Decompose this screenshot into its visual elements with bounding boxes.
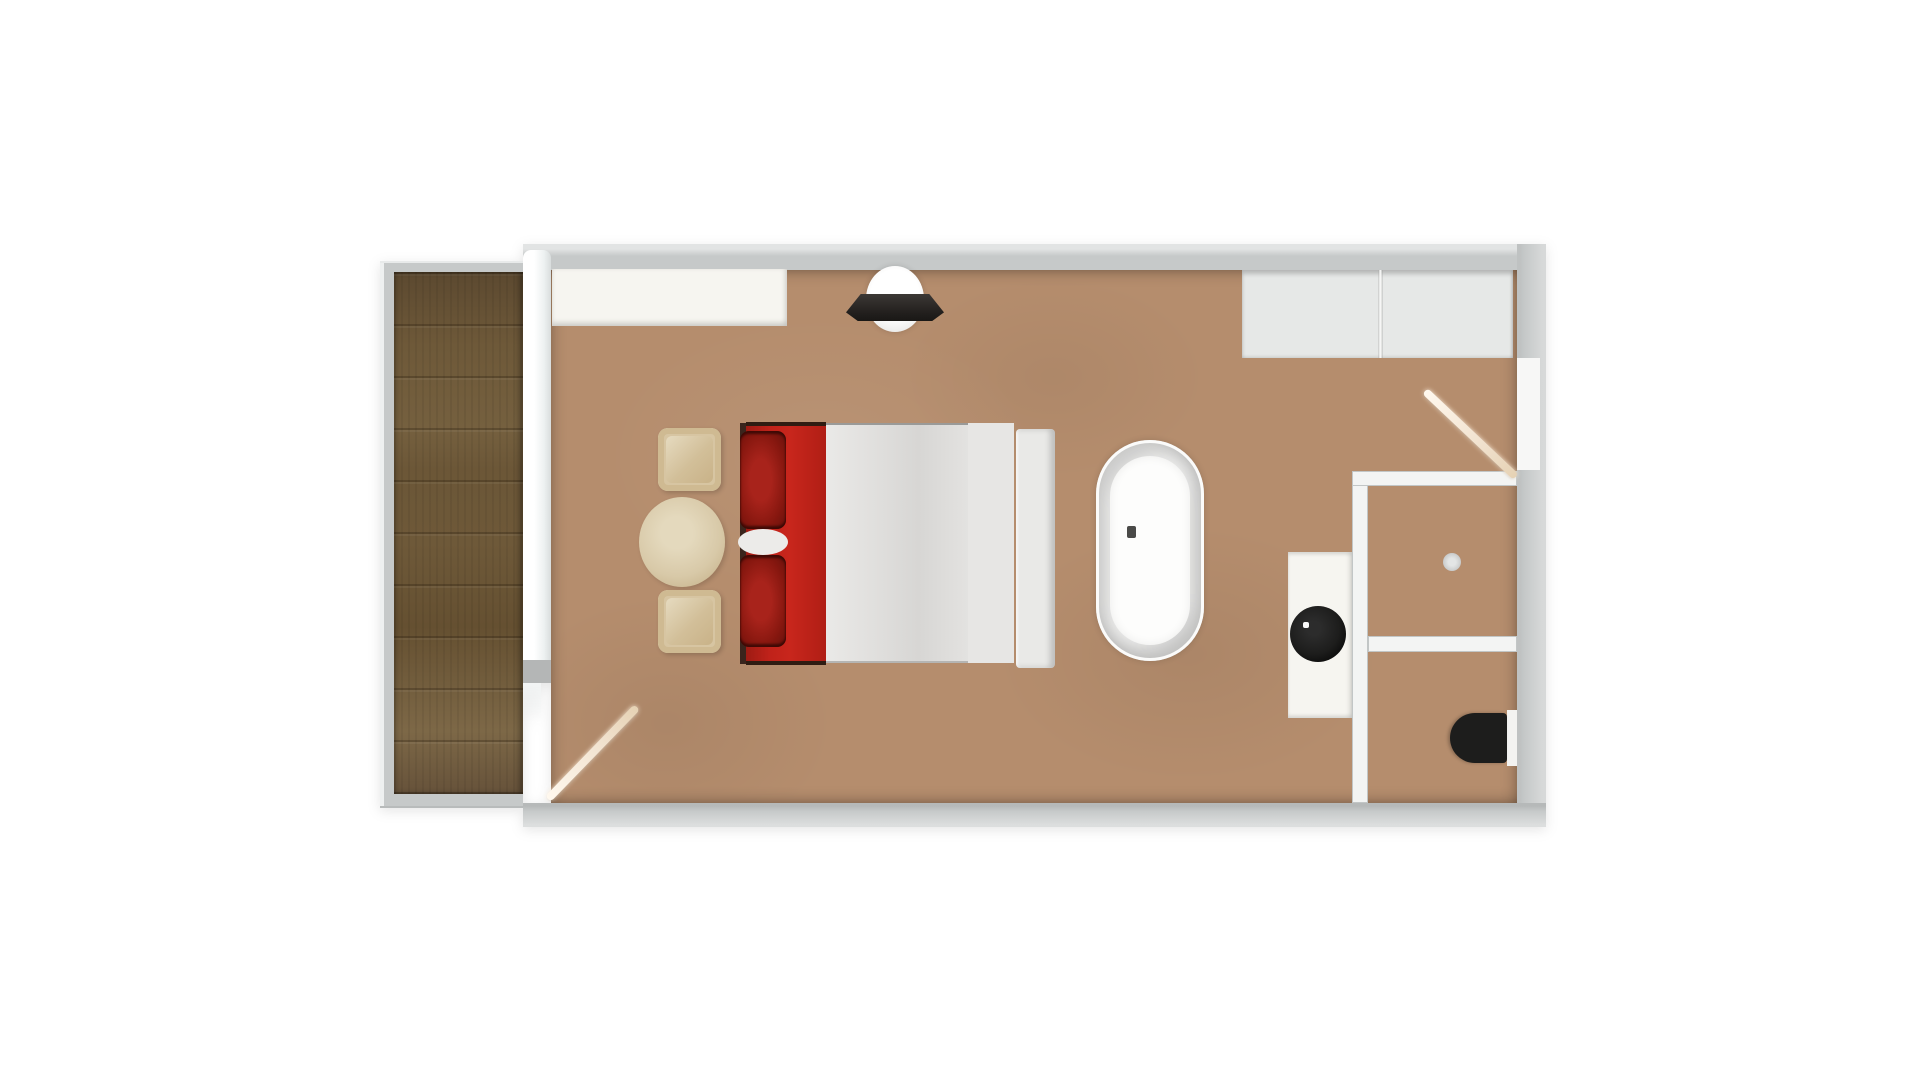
armchair-bottom bbox=[658, 590, 721, 653]
double-bed bbox=[740, 420, 1055, 668]
bed-pillow-area bbox=[968, 423, 1014, 663]
armchair-seat bbox=[666, 436, 713, 483]
bathtub bbox=[1096, 440, 1204, 661]
closet-divider bbox=[1378, 270, 1383, 358]
bed-headboard bbox=[1016, 429, 1055, 668]
wall-bottom bbox=[523, 803, 1546, 827]
balcony-door-opening bbox=[523, 683, 541, 723]
side-table bbox=[639, 497, 725, 587]
floor-plan bbox=[0, 0, 1920, 1080]
sink-highlight bbox=[1303, 622, 1309, 628]
bed-pillow-top bbox=[740, 431, 786, 529]
vanity-sink bbox=[1290, 606, 1346, 662]
toilet-cistern bbox=[1507, 710, 1517, 766]
bathtub-basin bbox=[1110, 456, 1190, 645]
armchair-top bbox=[658, 428, 721, 491]
wall-top bbox=[523, 244, 1546, 270]
bed-white-sheets bbox=[826, 423, 968, 663]
shower-drain bbox=[1443, 553, 1461, 571]
bed-pillow-gap bbox=[738, 529, 788, 555]
ceiling-lamp-shade bbox=[846, 294, 944, 321]
wall-right bbox=[1517, 244, 1546, 827]
shower-room-wall bbox=[1352, 471, 1517, 486]
wall-left-end-cap bbox=[523, 660, 551, 683]
wardrobe-counter bbox=[552, 269, 787, 326]
armchair-seat bbox=[666, 598, 713, 645]
bed-pillow-bottom bbox=[740, 555, 786, 647]
closet bbox=[1242, 270, 1513, 358]
vanity-counter bbox=[1288, 552, 1352, 718]
toilet bbox=[1450, 713, 1507, 763]
balcony-wood-deck bbox=[394, 272, 523, 794]
bathtub-drain bbox=[1127, 526, 1136, 538]
entry-door-opening bbox=[1517, 358, 1540, 470]
bathroom-partition-wall bbox=[1352, 471, 1368, 803]
wall-left bbox=[523, 250, 551, 660]
wc-divider-wall bbox=[1368, 636, 1517, 652]
